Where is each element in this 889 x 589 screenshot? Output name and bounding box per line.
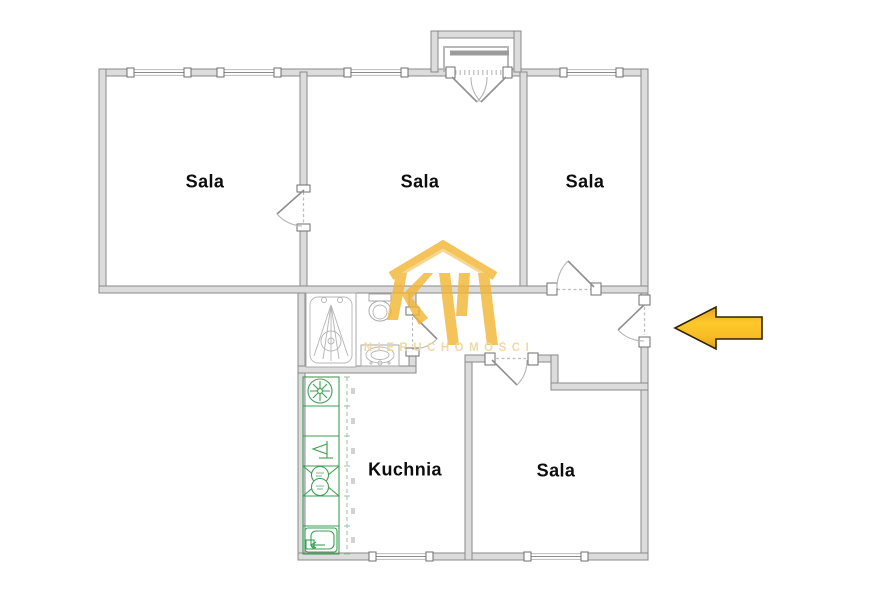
floor-plan-image: Sala Sala Sala Kuchnia Sala NIERUCHOMOŚC… <box>0 0 889 589</box>
appliances-icon <box>303 466 339 496</box>
watermark-text: NIERUCHOMOŚCI <box>364 342 535 354</box>
balcony <box>431 31 521 72</box>
sink-unit-icon <box>313 441 333 458</box>
room-label-sala-top-left: Sala <box>186 172 225 193</box>
cooker-fan-icon <box>308 379 332 403</box>
floor-plan-drawing <box>0 0 889 589</box>
room-label-sala-top-right: Sala <box>566 172 605 193</box>
room-label-sala-top-middle: Sala <box>401 172 440 193</box>
entrance-arrow-icon <box>675 307 762 349</box>
dimension-marks <box>344 377 355 554</box>
room-label-sala-bottom-right: Sala <box>537 461 576 482</box>
kw-logo-watermark <box>387 245 498 345</box>
room-label-kuchnia: Kuchnia <box>368 460 442 481</box>
bathtub-icon <box>306 293 356 367</box>
fridge-icon <box>305 528 337 552</box>
kitchen-units <box>303 377 355 554</box>
